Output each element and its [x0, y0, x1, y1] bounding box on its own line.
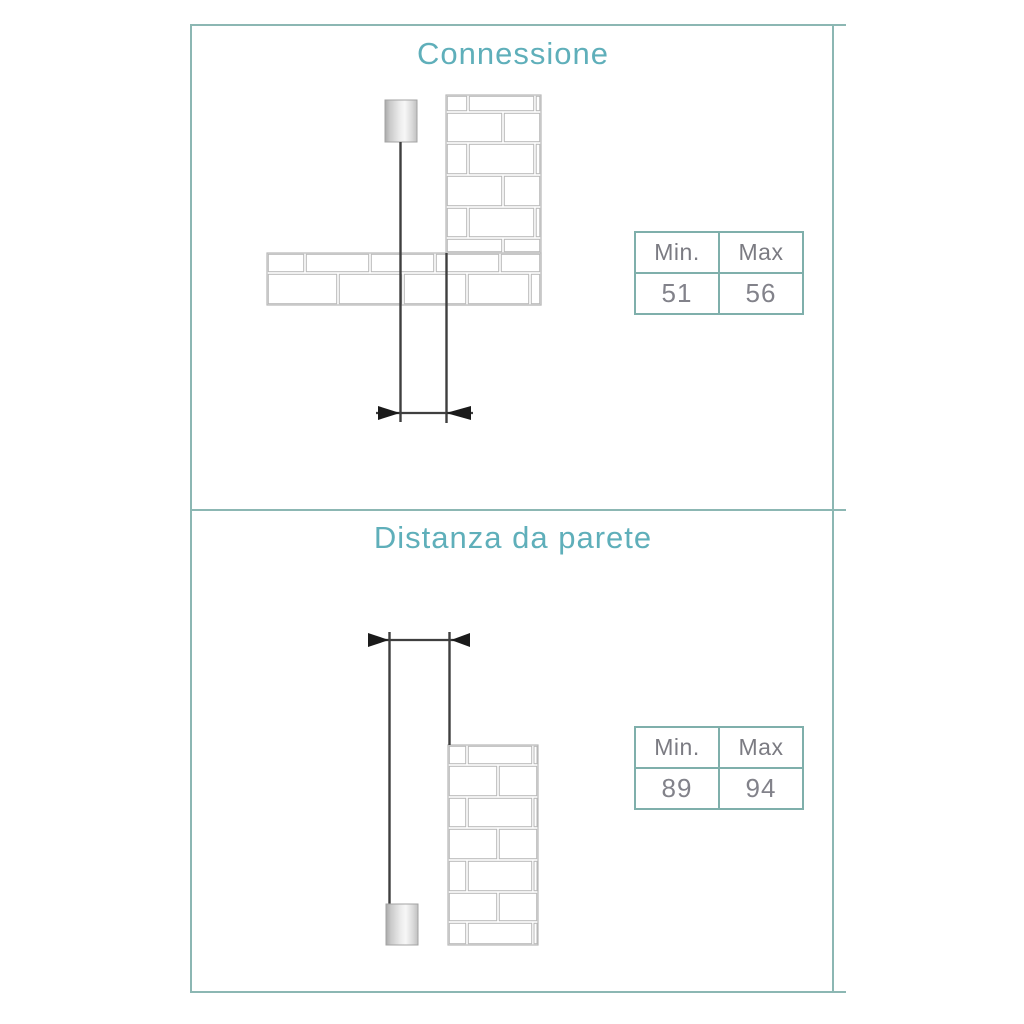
dimension-indicator — [368, 633, 470, 647]
right-arrowhead-icon — [451, 633, 470, 647]
minmax-table-connessione: Min. Max 51 56 — [634, 231, 804, 315]
max-header-cell: Max — [719, 727, 803, 768]
min-value-cell: 51 — [635, 273, 719, 314]
left-arrowhead-icon — [378, 406, 400, 420]
panel-section-divider — [190, 509, 846, 511]
pipe-connector — [385, 100, 417, 142]
panel-top-border-extension — [834, 24, 846, 26]
right-arrowhead-icon — [446, 406, 471, 420]
connection-diagram — [250, 90, 560, 440]
vertical-brick-wall — [448, 745, 538, 945]
floor-slab-brick-wall — [267, 253, 541, 305]
page-canvas: Connessione Min. Max — [0, 0, 1024, 1024]
min-header-cell: Min. — [635, 232, 719, 273]
max-value-cell: 56 — [719, 273, 803, 314]
dimension-indicator — [376, 406, 473, 420]
max-header-cell: Max — [719, 232, 803, 273]
section-title-connessione: Connessione — [192, 36, 834, 72]
wall-distance-diagram — [330, 612, 560, 957]
max-value-cell: 94 — [719, 768, 803, 809]
left-arrowhead-icon — [368, 633, 389, 647]
pipe-connector — [386, 904, 418, 945]
min-header-cell: Min. — [635, 727, 719, 768]
minmax-table-distanza: Min. Max 89 94 — [634, 726, 804, 810]
panel-bottom-border-extension — [834, 991, 846, 993]
section-title-distanza-da-parete: Distanza da parete — [192, 520, 834, 556]
min-value-cell: 89 — [635, 768, 719, 809]
